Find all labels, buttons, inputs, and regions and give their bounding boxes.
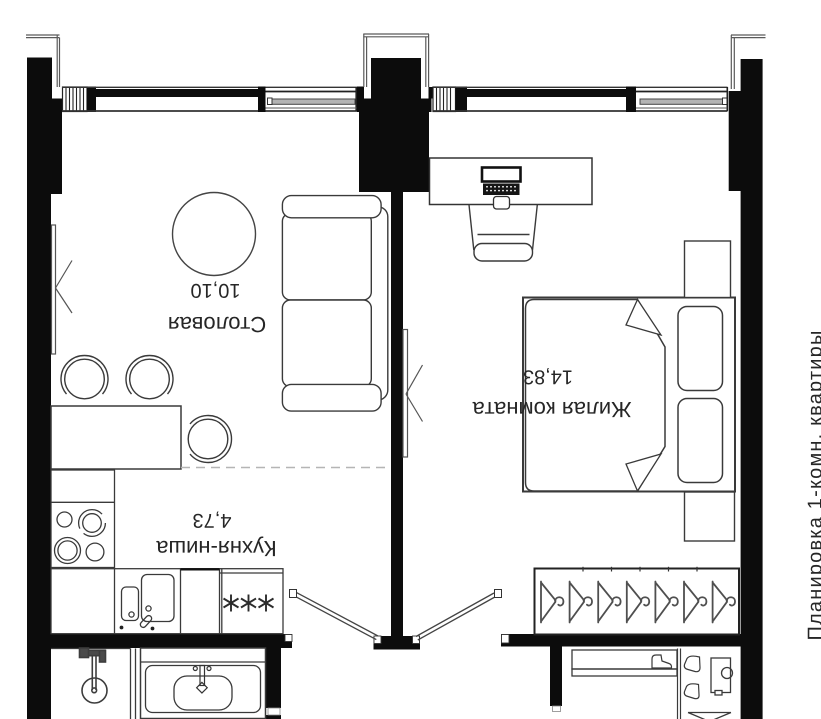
svg-text:Планировка 1-комн. квартиры: Планировка 1-комн. квартиры — [805, 329, 821, 640]
svg-text:Кухня-ниша: Кухня-ниша — [155, 536, 276, 561]
svg-text:Жилая комната: Жилая комната — [472, 397, 632, 422]
svg-text:10,10: 10,10 — [190, 279, 240, 301]
svg-text:4,73: 4,73 — [193, 509, 232, 531]
svg-text:14,83: 14,83 — [523, 366, 573, 388]
svg-text:Столовая: Столовая — [168, 312, 266, 337]
